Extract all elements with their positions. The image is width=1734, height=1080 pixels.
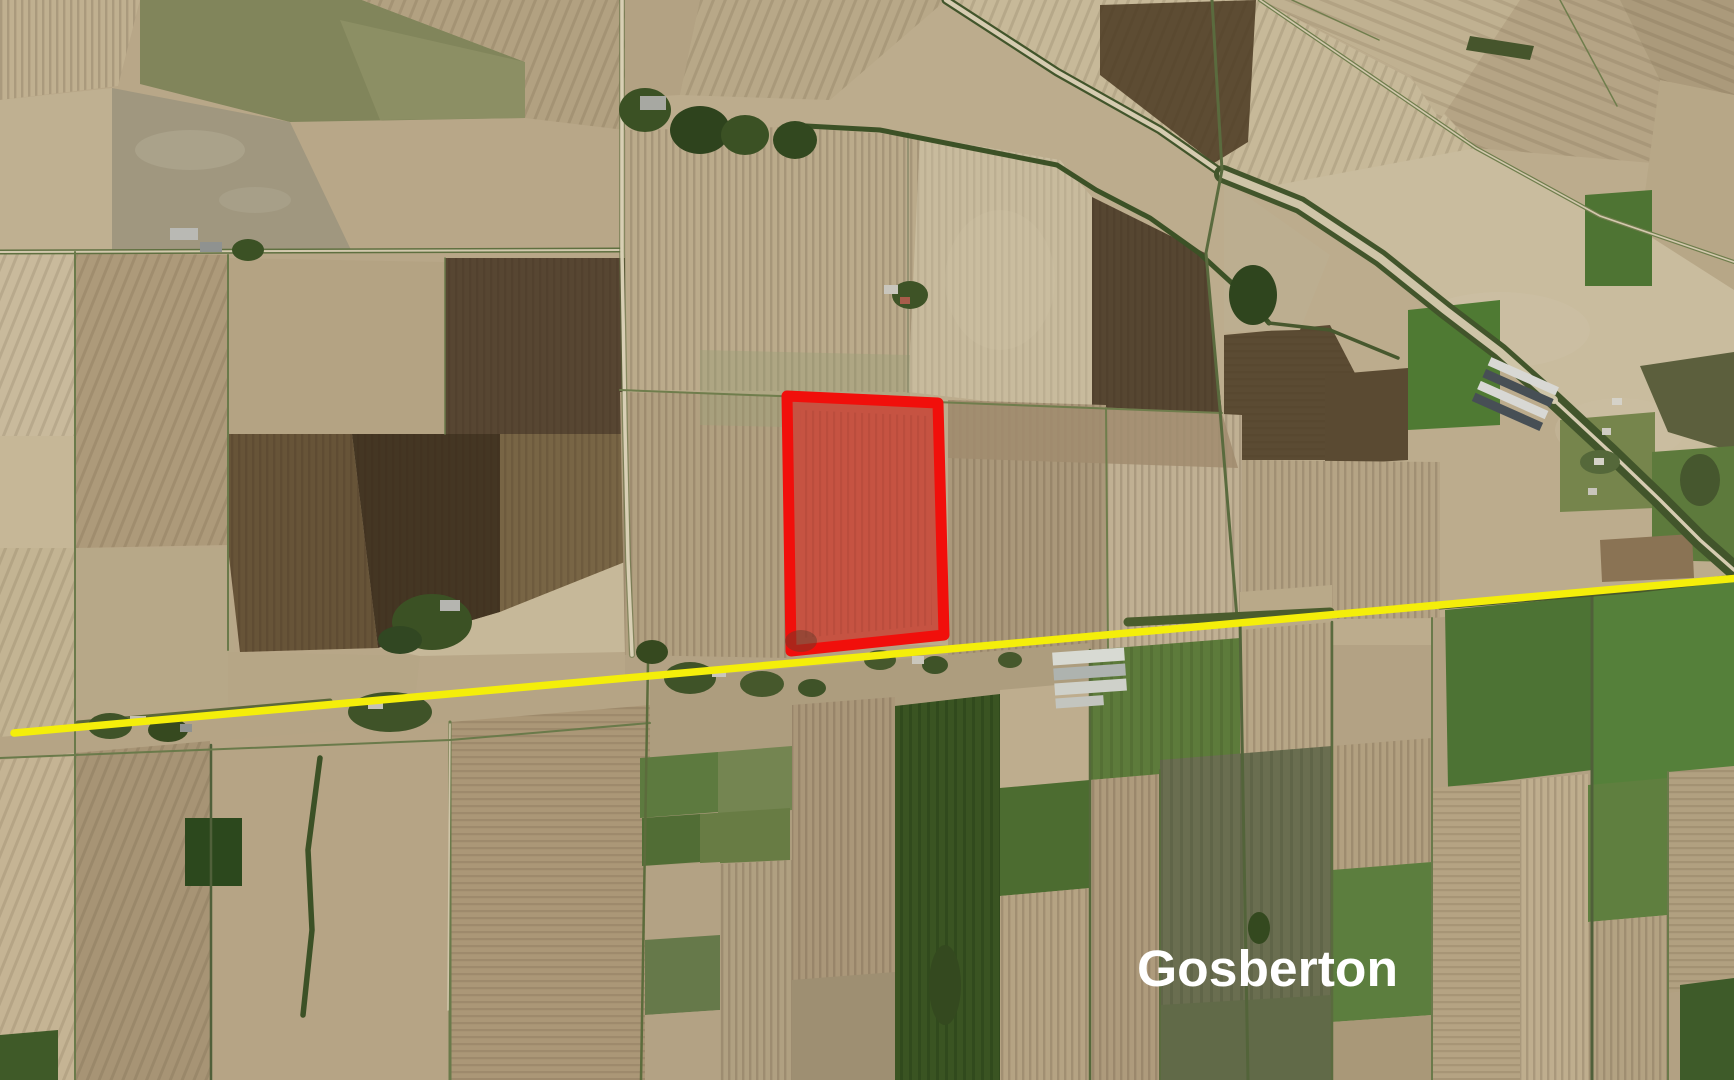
svg-text:Gosberton: Gosberton — [1137, 940, 1398, 997]
